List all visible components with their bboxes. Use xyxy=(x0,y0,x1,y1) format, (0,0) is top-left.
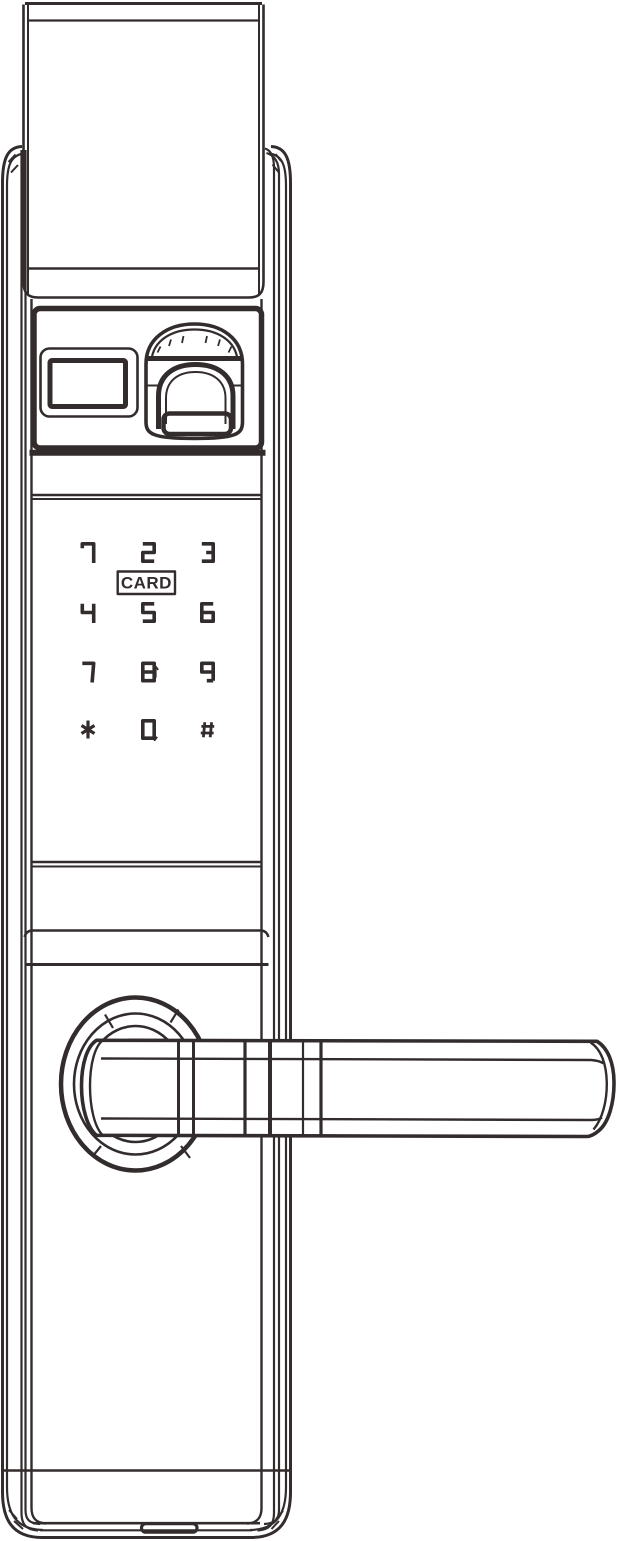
fingerprint-sensor[interactable] xyxy=(146,324,243,439)
keypad-key-0[interactable] xyxy=(143,721,154,738)
fingerprint-pad[interactable] xyxy=(164,414,232,435)
keypad-key-8[interactable] xyxy=(143,663,154,680)
right-face-edge xyxy=(247,299,262,1524)
cap-right-edge xyxy=(249,5,264,298)
key-glyph xyxy=(202,604,213,621)
keypad-key-9[interactable] xyxy=(202,663,213,680)
chamfer-tick xyxy=(11,165,18,173)
door-handle[interactable] xyxy=(82,1040,615,1136)
key-glyph xyxy=(82,721,95,739)
emergency-port[interactable] xyxy=(142,1524,198,1533)
keypad-key-3[interactable] xyxy=(202,544,213,561)
key-glyph xyxy=(202,663,213,680)
sensor-top-arc xyxy=(152,330,238,361)
right-outer-edge-inner xyxy=(250,154,286,1531)
card-label-text: CARD xyxy=(121,574,172,593)
sensor-arc-tick xyxy=(229,347,232,353)
top-cap xyxy=(24,4,264,298)
sensor-arc-tick xyxy=(169,340,171,347)
smart-lock-technical-drawing: CARD xyxy=(0,0,617,1541)
key-glyph xyxy=(202,544,213,561)
fingerprint-window-outer xyxy=(159,365,234,430)
lock-drawing-canvas: CARD xyxy=(0,0,617,1541)
sensor-arc-tick xyxy=(206,336,208,343)
display-window xyxy=(41,349,138,417)
key-glyph xyxy=(82,544,93,563)
sensor-arc-tick xyxy=(182,336,184,343)
sensor-arc-tick xyxy=(218,340,220,347)
display-screen xyxy=(50,361,126,407)
keypad: CARD xyxy=(82,544,215,740)
mid-band-line-upper xyxy=(25,931,269,938)
key-glyph xyxy=(143,604,154,621)
keypad-key-6[interactable] xyxy=(202,604,213,621)
sensor-arc-tick xyxy=(158,347,161,353)
keypad-key-4[interactable] xyxy=(82,604,93,623)
key-glyph xyxy=(143,544,154,561)
key-glyph xyxy=(82,663,93,682)
chamfer-tick xyxy=(9,1510,17,1519)
key-glyph xyxy=(201,722,214,737)
right-outer-edge xyxy=(251,147,291,1538)
keypad-key-5[interactable] xyxy=(143,604,154,621)
key-glyph xyxy=(143,721,154,738)
card-reader-label[interactable]: CARD xyxy=(118,572,175,595)
keypad-key-hash[interactable] xyxy=(201,722,214,737)
key-glyph xyxy=(143,663,154,680)
handle-outline xyxy=(82,1040,615,1136)
keypad-key-2[interactable] xyxy=(143,544,154,561)
key-glyph xyxy=(82,604,93,623)
rose-radial-tick xyxy=(93,1146,102,1157)
left-face-edge xyxy=(32,299,47,1524)
keypad-key-7[interactable] xyxy=(82,663,93,682)
right-bevel-line-2 xyxy=(264,153,279,1524)
bottom-port[interactable] xyxy=(142,1524,198,1533)
keypad-key-1[interactable] xyxy=(82,544,93,563)
fingerprint-window-inner xyxy=(166,372,226,424)
keypad-key-star[interactable] xyxy=(82,721,95,739)
